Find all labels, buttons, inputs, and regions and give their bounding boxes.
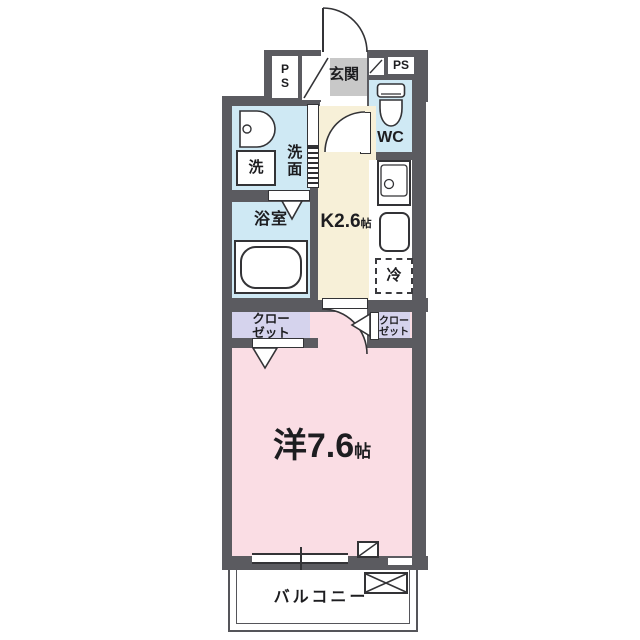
bathroom-label: 浴室: [232, 208, 310, 232]
kitchen-size: K2.6: [320, 212, 360, 233]
ps-left-line1: P: [281, 63, 289, 77]
closet-right-line2: ゼット: [379, 327, 409, 338]
window-diagonal-box: [357, 541, 379, 558]
closet-left-label: クロー ゼット: [232, 313, 310, 340]
closet-right-label: クロー ゼット: [378, 313, 410, 340]
ps-left-line2: S: [281, 77, 289, 91]
closet-right-line1: クロー: [379, 316, 409, 327]
kitchen-unit: 帖: [361, 218, 372, 230]
entrance-door-arc: [323, 8, 367, 52]
fridge-label: 冷: [375, 258, 413, 294]
main-room-label: 洋7.6帖: [232, 428, 412, 480]
washroom-label: 洗面: [282, 130, 304, 192]
sliding-window: [252, 553, 348, 564]
sliding-door-leaf-washroom: [307, 104, 319, 146]
entrance-label: 玄関: [321, 64, 367, 86]
counter-icon: [379, 212, 410, 252]
floor-plan: P S PS 玄関 WC 洗面 洗 浴室 K2.6帖 冷 クロー ゼット クロー…: [0, 0, 640, 640]
closet-left-line1: クロー: [252, 313, 290, 327]
main-room-unit: 帖: [354, 443, 371, 462]
washing-machine-label: 洗: [236, 150, 276, 186]
balcony-label: バルコニー: [238, 586, 404, 610]
room-door-leaf: [322, 298, 368, 309]
wc-label: WC: [369, 128, 412, 148]
wall-vent-dash: [388, 558, 412, 565]
closet-left-line2: ゼット: [252, 327, 290, 341]
ps-right-label: PS: [388, 57, 414, 74]
kitchen-label: K2.6帖: [312, 212, 380, 240]
ps-left-label: P S: [272, 56, 298, 98]
bathtub-icon: [234, 240, 308, 294]
main-room-size: 洋7.6: [273, 428, 354, 465]
sliding-door-pocket-washroom: [307, 146, 319, 188]
kitchen-sink-icon: [377, 160, 411, 206]
pipe-shaft-diagonal-box-right: [369, 58, 384, 75]
